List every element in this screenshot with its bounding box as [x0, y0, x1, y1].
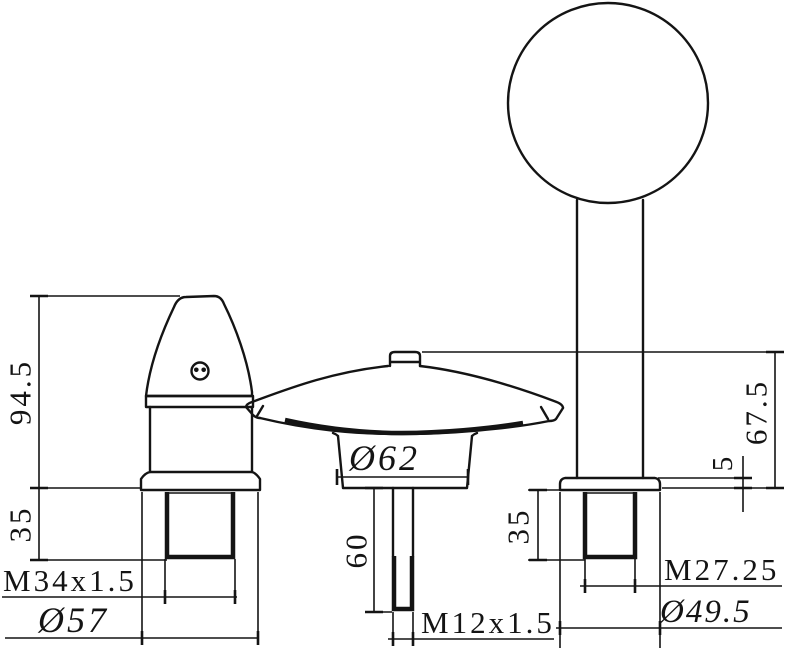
dim-right-base-diameter: Ø49.5: [659, 594, 752, 630]
dim-right-thread-length: 35: [501, 508, 536, 545]
handle-thread-shank: [167, 492, 233, 557]
spout-top-button: [390, 352, 420, 366]
spout-shank-upper: [393, 488, 413, 556]
knob-stem: [577, 200, 643, 478]
indicator-ring: [192, 363, 209, 380]
dim-spout-thread-spec: M12x1.5: [421, 605, 555, 640]
extension-lines: [30, 296, 180, 560]
dim-spout-diameter: Ø62: [348, 438, 420, 478]
thread-extension-lines: [393, 612, 413, 646]
left-dimension-annotations: 94.5 35 M34x1.5 Ø57: [2, 296, 258, 645]
thread-length-extension-lines: [528, 490, 585, 560]
indicator-dot-right: [201, 368, 206, 373]
spout-dome-top-left: [246, 366, 388, 407]
right-handle-component: [508, 3, 708, 557]
base-extension-lines: [142, 492, 258, 644]
spout-dome-top-right: [420, 366, 563, 408]
dim-left-base-diameter: Ø57: [37, 600, 109, 640]
indicator-dot-left: [194, 368, 199, 373]
flange-extension-lines: [658, 478, 783, 488]
base-extension-lines: [560, 492, 660, 648]
dim-right-height: 67.5: [739, 379, 774, 445]
spout-right-tip-bevel: [541, 407, 563, 421]
knob-circle: [508, 3, 708, 203]
right-dimension-annotations: 67.5 5 35 M27.25 Ø49.5: [422, 352, 784, 648]
spout-shank-thread: [394, 556, 412, 609]
dim-right-thread-spec: M27.25: [664, 552, 779, 587]
handle-bell-outline: [146, 296, 252, 396]
dim-spout-shank-length: 60: [339, 532, 374, 569]
spout-waterfall-slot: [285, 420, 523, 433]
dim-left-thread-length: 35: [3, 506, 38, 543]
dim-left-thread-spec: M34x1.5: [3, 563, 137, 598]
dim-left-height: 94.5: [3, 359, 38, 425]
handle-collar: [146, 396, 253, 407]
technical-drawing-canvas: 94.5 35 M34x1.5 Ø57 Ø62 60 M12x1.5 67.5 …: [0, 0, 786, 648]
spout-component: [246, 352, 563, 609]
knob-base-flange: [560, 478, 660, 490]
left-handle-component: [141, 296, 260, 557]
handle-base-flange: [141, 472, 260, 490]
knob-thread-shank: [585, 492, 635, 557]
thread-extension-lines: [585, 559, 635, 592]
handle-body-cylinder: [150, 407, 252, 472]
dim-right-flange-height: 5: [707, 455, 739, 472]
drawing-page: 94.5 35 M34x1.5 Ø57 Ø62 60 M12x1.5 67.5 …: [0, 0, 786, 648]
